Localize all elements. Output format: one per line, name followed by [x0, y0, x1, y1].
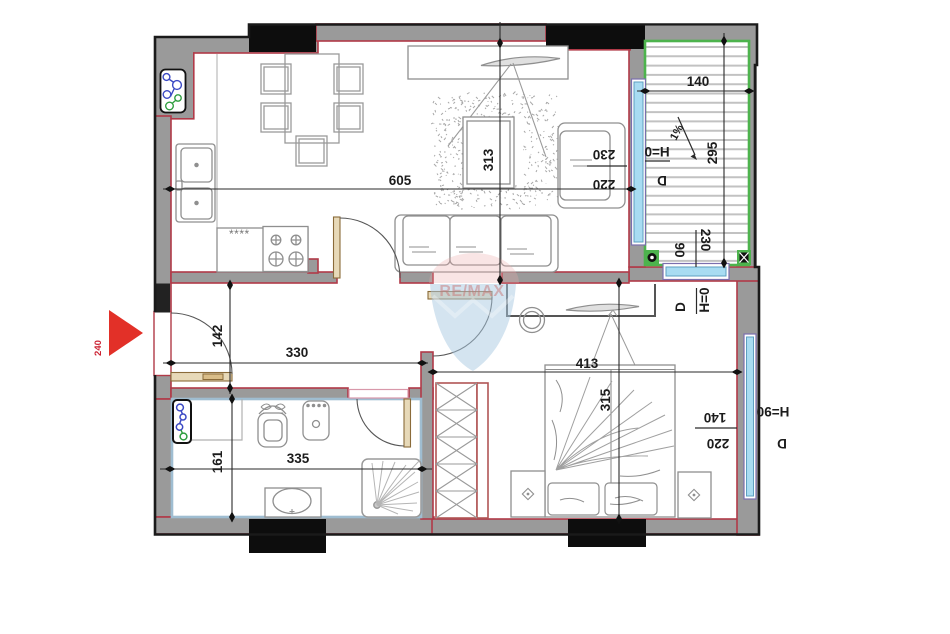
svg-text:D: D	[777, 436, 787, 451]
svg-text:230: 230	[698, 229, 713, 252]
svg-text:313: 313	[481, 148, 496, 171]
svg-text:H=90: H=90	[757, 404, 790, 419]
svg-text:295: 295	[705, 141, 720, 164]
svg-text:605: 605	[389, 173, 412, 188]
svg-text:****: ****	[229, 227, 250, 241]
svg-text:D: D	[657, 173, 667, 188]
svg-text:240: 240	[93, 340, 104, 356]
svg-text:413: 413	[576, 356, 599, 371]
svg-text:335: 335	[287, 451, 310, 466]
svg-text:90: 90	[672, 242, 687, 257]
svg-text:161: 161	[210, 450, 225, 473]
svg-text:D: D	[673, 302, 688, 312]
svg-text:315: 315	[598, 388, 613, 411]
svg-text:140: 140	[687, 74, 710, 89]
svg-text:230: 230	[593, 147, 616, 162]
svg-text:330: 330	[286, 345, 309, 360]
svg-text:H=0: H=0	[697, 287, 712, 312]
svg-text:140: 140	[704, 410, 727, 425]
svg-text:220: 220	[593, 177, 616, 192]
svg-text:H=0: H=0	[644, 144, 669, 159]
svg-text:RE/MAX: RE/MAX	[439, 283, 504, 300]
svg-text:220: 220	[707, 436, 730, 451]
svg-text:142: 142	[210, 325, 225, 348]
